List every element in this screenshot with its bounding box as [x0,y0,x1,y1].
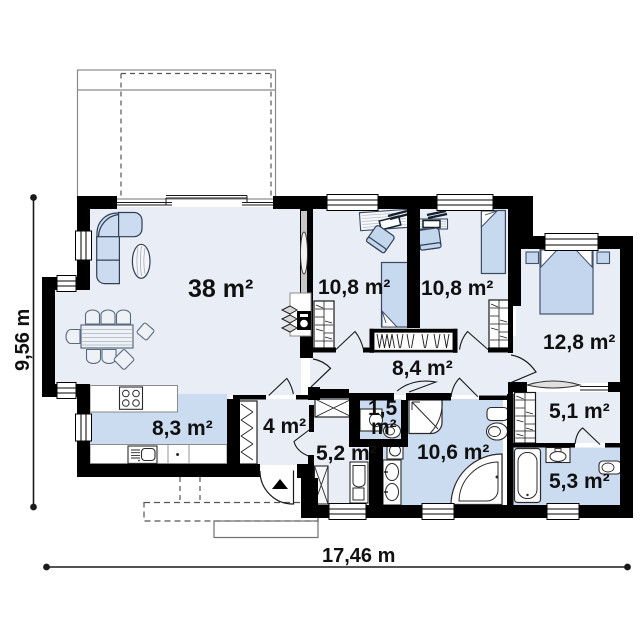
svg-text:5,2 m²: 5,2 m² [316,442,377,465]
svg-text:m²: m² [371,416,397,439]
svg-text:10,8 m²: 10,8 m² [421,277,493,300]
svg-text:8,3 m²: 8,3 m² [152,417,213,440]
svg-text:8,4 m²: 8,4 m² [392,357,453,380]
svg-text:9,56 m: 9,56 m [12,309,34,371]
svg-text:4 m²: 4 m² [263,415,306,438]
svg-text:38 m²: 38 m² [188,275,253,303]
svg-text:10,6 m²: 10,6 m² [417,441,489,464]
svg-text:10,8 m²: 10,8 m² [318,276,390,299]
svg-text:5,3 m²: 5,3 m² [549,470,610,493]
svg-text:12,8 m²: 12,8 m² [543,331,615,354]
svg-text:5,1 m²: 5,1 m² [549,400,610,423]
svg-text:17,46 m: 17,46 m [322,545,395,567]
